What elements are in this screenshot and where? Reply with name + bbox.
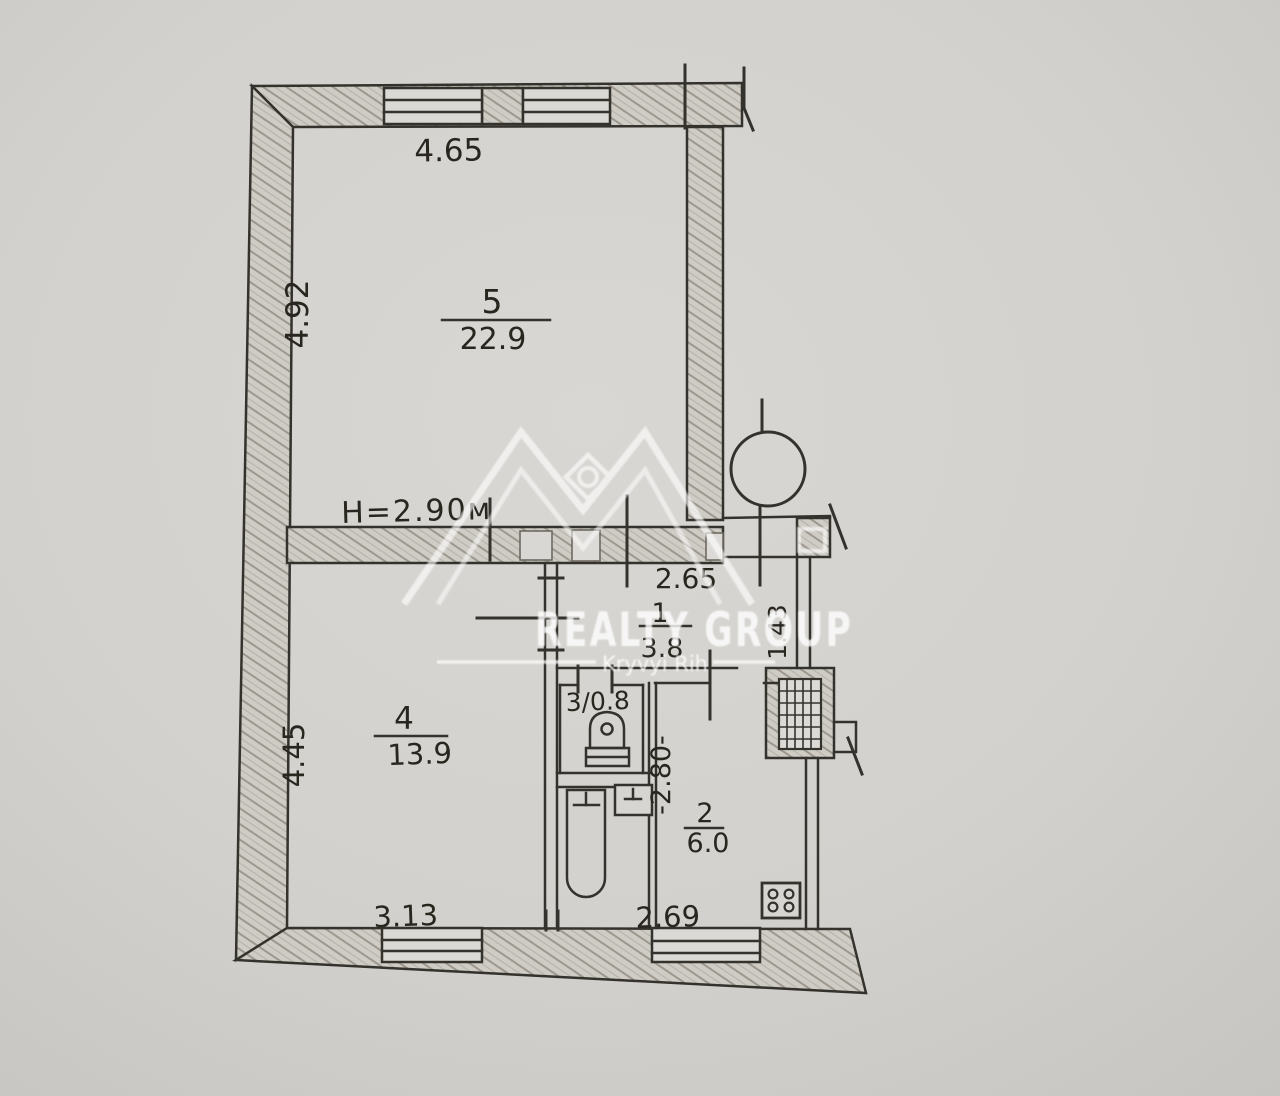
watermark-brand-text: REALTY GROUP — [535, 603, 853, 658]
room5-area-label: 22.9 — [460, 322, 527, 357]
scanned-floor-plan-page: 4.65 4.92 5 22.9 H=2.90м 2.65 1 3.8 1.43… — [0, 0, 1280, 1096]
window-top-right — [523, 88, 610, 124]
door-opening-left — [520, 531, 552, 560]
boiler-icon — [731, 432, 805, 506]
room2-height-dimension: -2.80- — [646, 735, 677, 815]
room5-height-dimension: 4.92 — [280, 279, 316, 348]
room4-number-label: 4 — [394, 701, 414, 737]
window-pier-top — [482, 88, 523, 124]
room3-label: 3/0.8 — [565, 686, 630, 717]
room2-number-label: 2 — [696, 798, 713, 829]
wall-middle — [287, 527, 723, 563]
wall-room5-right — [687, 127, 723, 520]
room4-width-dimension: 3.13 — [373, 898, 439, 934]
window-top-left — [384, 88, 482, 124]
room4-height-dimension: 4.45 — [277, 723, 311, 788]
floor-plan-canvas: 4.65 4.92 5 22.9 H=2.90м 2.65 1 3.8 1.43… — [0, 0, 1280, 1096]
room2-area-label: 6.0 — [687, 828, 730, 859]
watermark-location-text: Kryvyi Rih — [602, 652, 708, 676]
stove-icon — [762, 883, 800, 918]
room5-number-label: 5 — [482, 282, 503, 321]
room5-width-dimension: 4.65 — [414, 132, 484, 169]
room2-width-dimension: 2.69 — [635, 899, 700, 935]
room4-area-label: 13.9 — [387, 736, 453, 772]
